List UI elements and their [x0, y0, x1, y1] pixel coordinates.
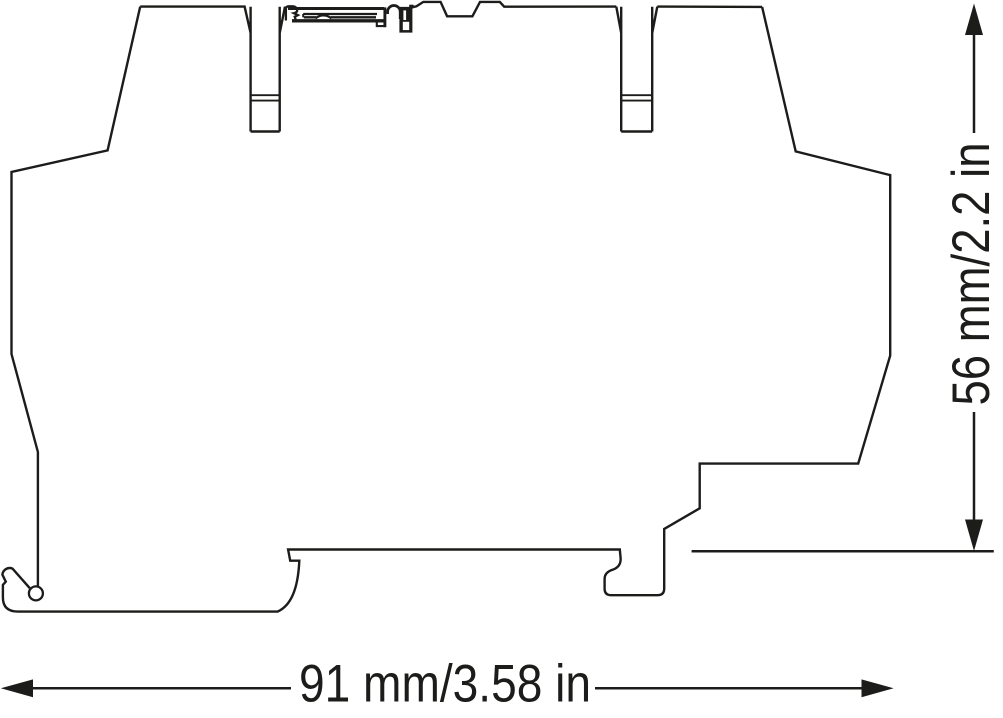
svg-text:91 mm/3.58 in: 91 mm/3.58 in [299, 655, 591, 714]
svg-text:56 mm/2.2 in: 56 mm/2.2 in [942, 143, 1001, 406]
